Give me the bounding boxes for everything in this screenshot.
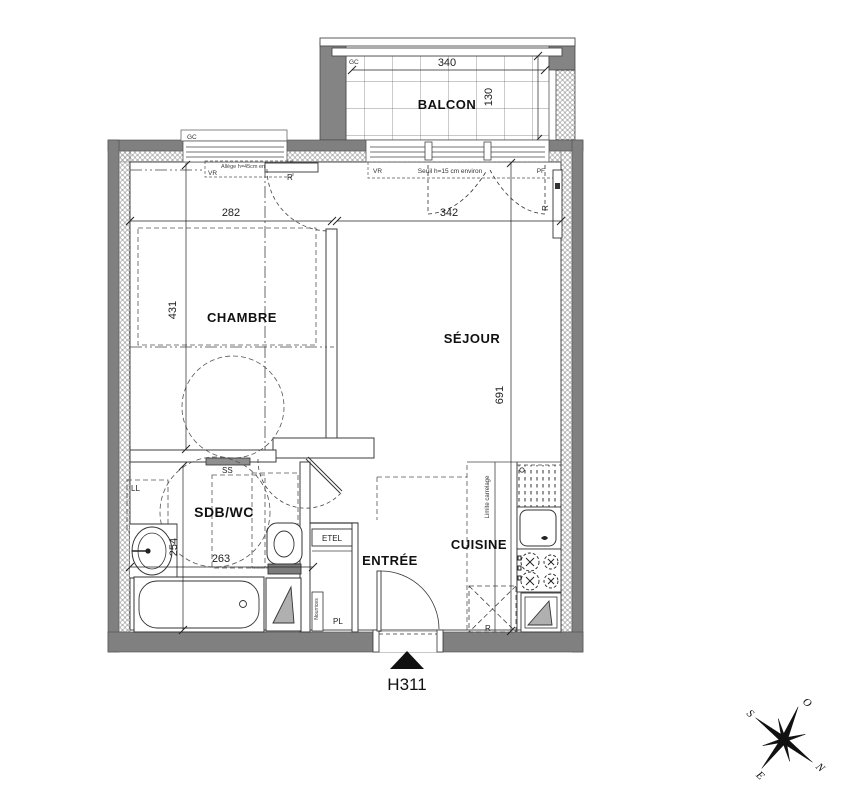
wall-chambre-sejour [326,229,337,438]
cuisine-room-label: CUISINE [451,537,507,552]
room-entree: ENTRÉE [362,465,467,652]
chambre-door-arc [267,169,329,231]
closet-right-wall [352,523,358,632]
chambre-radiator [265,163,318,172]
entrance-opening [379,632,437,652]
compass-west-label: O [800,696,814,710]
washing-machine-label: LL [131,484,140,493]
toilet-cistern [268,564,301,574]
room-sejour: R SÉJOUR [444,170,562,346]
dimensions: 282 342 431 691 254 263 [126,159,565,635]
chambre-window-frame [183,141,287,162]
sejour-radiator [553,170,562,238]
room-cuisine: Limite carrelage R CUISI [451,462,561,633]
entrance-marker: H311 [387,651,426,694]
chambre-room-label: CHAMBRE [207,310,277,325]
tile-limit-label: Limite carrelage [485,475,491,518]
sdb-door-leaf [306,459,340,493]
wall-beam-entree [273,438,374,458]
entrance-triangle-icon [390,651,424,669]
sejour-width-dim: 342 [440,207,458,219]
balcony-depth-dim: 130 [483,88,495,106]
turning-circle [182,356,284,458]
bay-window-pf-label: PF [537,168,545,175]
etel-label: ETEL [322,534,343,543]
balcony-wall-right [556,70,575,140]
wall-bottom-gray [108,632,583,652]
bay-window-vr-label: VR [373,168,382,175]
bathtub [134,577,264,632]
chambre-radiator-label: R [287,173,293,182]
sdb-height-dim: 254 [168,538,180,556]
towel-rail-label: SS [222,466,233,475]
placard-label: PL [333,617,343,626]
toilet-bowl [267,523,302,564]
floor-plan-page: GC 340 130 BALCON GC Allège h=45cm envir… [0,0,863,798]
bay-window-mullion [425,142,432,160]
unit-label: H311 [387,675,426,694]
kitchen-sink [520,510,556,546]
bay-window-seuil-note: Seuil h=15 cm environ [418,168,483,175]
wall-left-gray [108,140,119,652]
chambre-window-gc-label: GC [187,134,197,141]
balcony-wall-left [320,42,346,140]
chambre-height-dim: 431 [167,301,179,319]
entree-room-label: ENTRÉE [362,553,418,568]
bay-door-arc-right [490,170,545,214]
wall-chambre-sdb [130,450,276,462]
towel-rail [206,458,250,465]
sejour-bay-window: VR Seuil h=15 cm environ PF [366,140,561,214]
washbasin-faucet [145,548,150,553]
wall-right-insulation [561,151,572,632]
balcony: GC 340 130 BALCON [320,38,575,143]
bay-window-mullion [484,142,491,160]
sdb-room-label: SDB/WC [194,504,254,520]
sejour-radiator-valve [555,183,560,189]
balcony-room-label: BALCON [418,97,477,112]
entrance-door-leaf [377,571,381,631]
wall-right-gray [572,140,583,652]
compass-rose: O N S E [744,696,827,783]
floor-plan-drawing: GC 340 130 BALCON GC Allège h=45cm envir… [0,0,863,798]
compass-north-label: N [813,760,828,775]
bay-window-frame [366,140,549,162]
chambre-window-gc-box [181,130,287,141]
compass-star [756,707,813,769]
sdb-door-arc [258,459,341,508]
sejour-room-label: SÉJOUR [444,331,501,346]
compass-south-label: S [744,707,756,720]
balcony-gc-label: GC [349,59,359,66]
sdb-width-dim: 263 [212,553,230,565]
closet-etel: ETEL Nourrices PL [312,529,352,631]
sejour-radiator-label: R [541,205,550,211]
fridge-slot [469,586,516,632]
chambre-window-vr-label: VR [208,170,217,177]
exterior-walls [108,140,583,652]
balcony-width-dim: 340 [438,57,456,69]
chambre-width-dim: 282 [222,207,240,219]
balcony-railing-inner [332,48,562,56]
bed-outline [138,228,316,345]
manifold-label: Nourrices [314,598,320,620]
balcony-railing-outer [320,38,575,46]
compass-east-label: E [753,768,767,782]
entrance-door-arc [381,571,439,629]
sejour-height-dim: 691 [494,386,506,404]
fridge-label: R [485,624,491,633]
